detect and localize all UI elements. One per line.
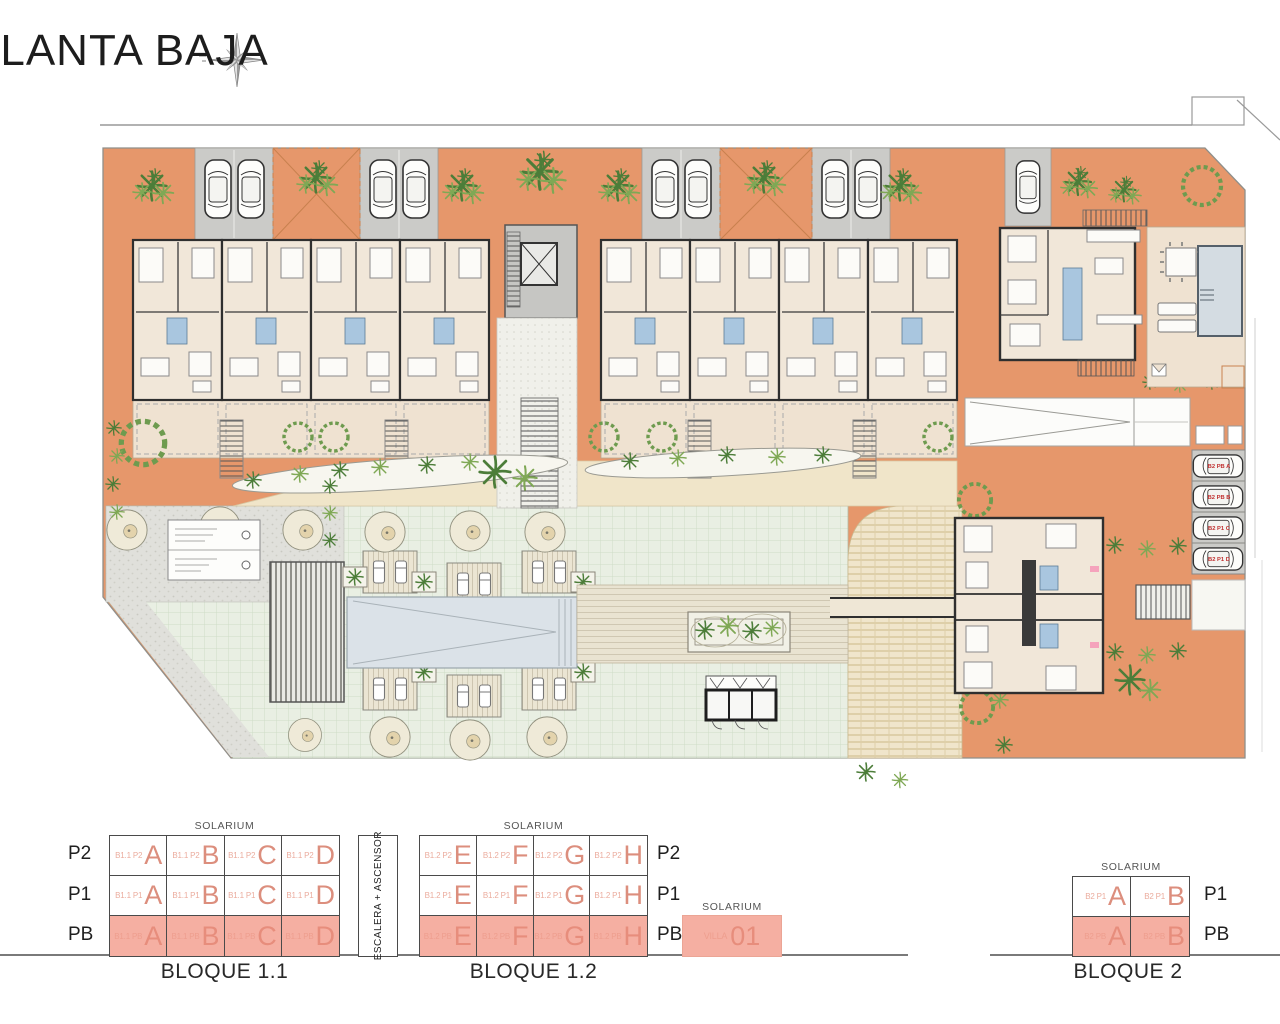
- unit-cell[interactable]: B1.1 P1C: [225, 876, 282, 916]
- unit-cell[interactable]: B2 P1A: [1073, 877, 1131, 917]
- lounger: [1158, 303, 1196, 315]
- row-label-p2: P2: [68, 843, 91, 865]
- unit-cell[interactable]: B1.1 P2C: [225, 836, 282, 876]
- unit-cell[interactable]: B1.2 P2E: [420, 836, 477, 876]
- bloque-1-1-building: [133, 240, 489, 400]
- unit-cell[interactable]: B1.2 P2H: [590, 836, 647, 876]
- wc-block: [706, 676, 776, 729]
- bloque-2-parking: B2 PB A B2 PB B B2 P1 C B2 P1 D: [1192, 450, 1245, 574]
- unit-cell[interactable]: B1.2 P2F: [477, 836, 534, 876]
- unit-cell[interactable]: B1.1 P1D: [282, 876, 339, 916]
- bloque-1-1-matrix: B1.1 P2A B1.1 P2B B1.1 P2C B1.1 P2D B1.1…: [109, 835, 340, 957]
- unit-cell[interactable]: B1.1 PBA: [110, 916, 167, 956]
- unit-cell[interactable]: B1.1 P1A: [110, 876, 167, 916]
- floor-plan-page: B2 PB A B2 PB B B2 P1 C B2 P1 D PLANTA B…: [0, 0, 1280, 1024]
- row-label-pb: PB: [657, 924, 682, 946]
- parking-label: B2 PB A: [1208, 464, 1231, 470]
- bloque-2-matrix: B2 P1A B2 P1B B2 PBA B2 PBB: [1072, 876, 1190, 957]
- row-label-p1: P1: [657, 884, 680, 906]
- villa-01-cell[interactable]: VILLA 01: [682, 915, 782, 957]
- unit-cell[interactable]: B1.2 PBF: [477, 916, 534, 956]
- escalera-box: ESCALERA + ASCENSOR: [358, 835, 398, 957]
- row-label-pb: PB: [1204, 924, 1229, 946]
- ramp: [965, 398, 1190, 446]
- lounger: [1158, 320, 1196, 332]
- pool: [347, 597, 577, 668]
- stairs-icon: [1078, 360, 1134, 376]
- unit-cell[interactable]: B1.2 PBH: [590, 916, 647, 956]
- pergola: [270, 562, 344, 702]
- row-label-pb: PB: [68, 924, 93, 946]
- bloque-2-title: BLOQUE 2: [1038, 960, 1218, 984]
- unit-cell[interactable]: B1.2 P1G: [534, 876, 591, 916]
- unit-cell[interactable]: B1.1 P2B: [167, 836, 224, 876]
- bloque-1-2-building: [601, 240, 957, 400]
- row-label-p2: P2: [657, 843, 680, 865]
- parking-label: B2 P1 D: [1208, 557, 1230, 563]
- unit-cell[interactable]: B1.2 P2G: [534, 836, 591, 876]
- unit-cell[interactable]: B1.1 P2A: [110, 836, 167, 876]
- unit-cell[interactable]: B1.2 PBE: [420, 916, 477, 956]
- unit-cell[interactable]: B1.2 P1F: [477, 876, 534, 916]
- unit-cell[interactable]: B1.1 PBC: [225, 916, 282, 956]
- unit-cell[interactable]: B1.2 P1E: [420, 876, 477, 916]
- unit-cell[interactable]: B1.2 PBG: [534, 916, 591, 956]
- solarium-label: SOLARIUM: [109, 820, 340, 832]
- outdoor-table: [1166, 248, 1196, 276]
- unit-cell[interactable]: B2 PBA: [1073, 917, 1131, 957]
- solarium-label: SOLARIUM: [419, 820, 648, 832]
- row-label-p1: P1: [1204, 884, 1227, 906]
- car-icon: [1016, 161, 1039, 213]
- bloque-1-1-title: BLOQUE 1.1: [109, 960, 340, 984]
- garden-path: [848, 506, 962, 758]
- parking-label: B2 P1 C: [1208, 526, 1231, 532]
- unit-cell[interactable]: B1.2 P1H: [590, 876, 647, 916]
- equipment-note: [168, 520, 260, 580]
- unit-cell[interactable]: B2 P1B: [1131, 877, 1189, 917]
- unit-cell[interactable]: B2 PBB: [1131, 917, 1189, 957]
- page-title: PLANTA BAJA: [0, 26, 269, 76]
- unit-cell[interactable]: B1.1 P2D: [282, 836, 339, 876]
- unit-cell[interactable]: B1.1 PBB: [167, 916, 224, 956]
- unit-cell[interactable]: B1.1 P1B: [167, 876, 224, 916]
- parking-label: B2 PB B: [1208, 495, 1231, 501]
- row-label-p1: P1: [68, 884, 91, 906]
- bloque-1-2-title: BLOQUE 1.2: [419, 960, 648, 984]
- unit-cell[interactable]: B1.1 PBD: [282, 916, 339, 956]
- solarium-label: SOLARIUM: [1072, 861, 1190, 873]
- bloque-1-2-matrix: B1.2 P2E B1.2 P2F B1.2 P2G B1.2 P2H B1.2…: [419, 835, 648, 957]
- solarium-label: SOLARIUM: [682, 901, 782, 913]
- villa-pool: [1198, 246, 1242, 336]
